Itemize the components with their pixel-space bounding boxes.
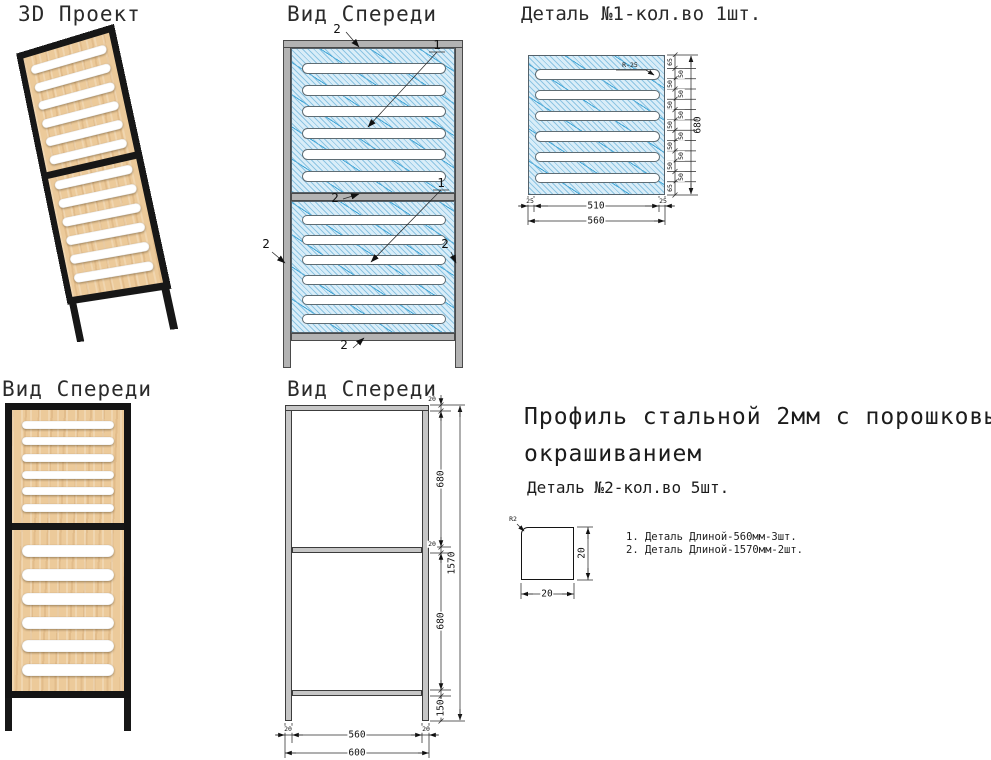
slot	[22, 437, 114, 445]
title-detail-1: Деталь №1-кол.во 1шт.	[521, 3, 761, 25]
callout-label: 2	[331, 192, 339, 205]
slot	[22, 487, 114, 495]
panel-3d-wrapper	[16, 24, 180, 342]
dim-label: 50	[667, 161, 674, 171]
leg	[124, 698, 131, 731]
dim-label: 25	[525, 198, 535, 205]
dim-label-height-total: 680	[693, 115, 703, 134]
slot	[22, 421, 114, 429]
callout-label: 1	[433, 39, 441, 52]
dim-label: 20	[427, 541, 437, 548]
callout-leader-lines	[258, 18, 488, 398]
dim-label: 50	[667, 141, 674, 151]
frame-dimension-lines	[283, 403, 493, 760]
dim-label-width-total: 600	[347, 748, 366, 758]
radius-label: R-25	[621, 62, 639, 69]
spec-material-line2: окрашиванием	[524, 441, 702, 467]
slot	[22, 569, 114, 581]
profile-dimension-lines	[521, 527, 641, 607]
wood-panel-frame	[5, 403, 131, 698]
dim-label: 50	[677, 131, 684, 141]
slot	[22, 664, 114, 676]
callout-label: 2	[441, 238, 449, 251]
dim-label-width-inner: 560	[347, 730, 366, 740]
mid-rail	[12, 523, 124, 530]
dim-label: 50	[677, 110, 684, 120]
profile-section-drawing: R2 20 20	[521, 527, 641, 607]
dim-label: 50	[677, 172, 684, 182]
dim-label: 50	[667, 120, 674, 130]
dim-label: 50	[677, 69, 684, 79]
slot	[22, 617, 114, 629]
title-3d-view: 3D Проект	[18, 2, 141, 26]
dim-label: 20	[427, 396, 437, 403]
dim-label: 50	[677, 151, 684, 161]
dim-label: 20	[421, 726, 431, 733]
render-3d-view	[4, 24, 174, 369]
spec-detail-2: Деталь №2-кол.во 5шт.	[527, 478, 729, 497]
slot	[22, 640, 114, 652]
dim-label: 25	[658, 198, 668, 205]
callout-label: 2	[262, 238, 270, 251]
dim-label: 20	[283, 726, 293, 733]
dim-label-upper-opening: 680	[436, 469, 446, 488]
callout-label: 2	[333, 23, 341, 36]
dim-label: 50	[667, 100, 674, 110]
dim-label: 50	[677, 89, 684, 99]
detail-1-dimension-lines	[528, 55, 738, 235]
callout-label: 2	[340, 339, 348, 352]
detail-1-drawing: R-25 65 50 50 50 50 50 50 50 50 50 50 50…	[528, 55, 738, 235]
dim-label-width-inner: 510	[586, 201, 605, 211]
panel-3d-frame	[16, 24, 171, 305]
title-front-view-bottom-left: Вид Спереди	[2, 377, 152, 401]
slot	[69, 241, 150, 264]
dim-label-profile-height: 20	[577, 546, 587, 559]
dim-label-height-total: 1570	[447, 551, 457, 576]
slot	[65, 222, 145, 246]
leg	[162, 289, 178, 330]
callout-label: 1	[437, 177, 445, 190]
slot	[22, 504, 114, 512]
frame-drawing: 20 680 20 680 150 1570 20 560 20 600	[283, 403, 493, 760]
dim-label-width-total: 560	[586, 216, 605, 226]
drawing-sheet: 3D Проект Вид Спереди Деталь №1-кол.во 1…	[0, 0, 991, 760]
slot	[22, 454, 114, 462]
dim-label-profile-width: 20	[540, 589, 553, 599]
dim-label: 65	[667, 57, 674, 67]
slot	[22, 593, 114, 605]
spec-material-line1: Профиль стальной 2мм с порошковым	[524, 404, 991, 430]
slot	[22, 471, 114, 479]
slot	[22, 545, 114, 557]
leg	[69, 303, 84, 342]
dim-label-leg: 150	[436, 698, 446, 717]
dim-label: 65	[667, 183, 674, 193]
dim-label-lower-opening: 680	[436, 611, 446, 630]
front-view-wood-drawing	[5, 403, 137, 735]
slot	[73, 261, 154, 283]
note-line: 1. Деталь Длиной-560мм-3шт.	[626, 531, 797, 543]
note-line: 2. Деталь Длиной-1570мм-2шт.	[626, 544, 803, 556]
dim-label: 50	[667, 79, 674, 89]
leg	[5, 698, 12, 731]
radius-label: R2	[508, 516, 518, 523]
front-view-top-drawing: 2 1 2 1 2 2 2	[283, 40, 463, 370]
